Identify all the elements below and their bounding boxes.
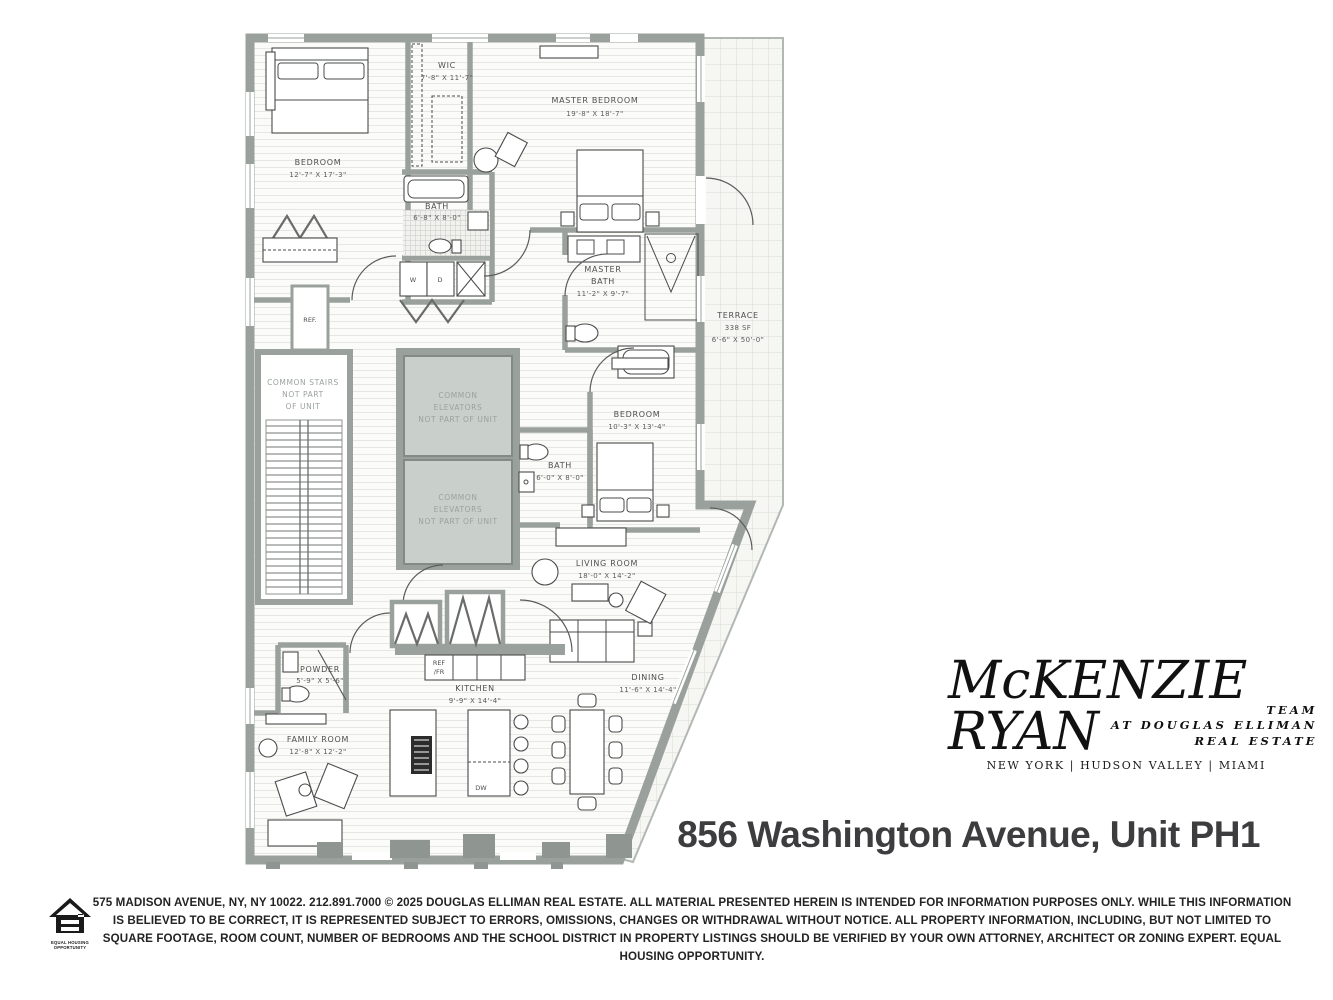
label-ref-fr-1: REF	[433, 659, 446, 667]
label-master-bath-1: MASTER	[584, 265, 621, 274]
logo-name-line1: McKENZIE	[948, 660, 1266, 703]
label-ref-closet: REF.	[303, 316, 316, 324]
equal-housing-icon	[48, 897, 92, 935]
ref-closet: REF.	[292, 286, 328, 350]
label-master-bedroom: MASTER BEDROOM	[551, 96, 638, 105]
label-wic: WIC	[438, 61, 456, 70]
label-common-stairs-3: OF UNIT	[286, 402, 321, 411]
label-bath-middle: BATH	[548, 461, 572, 470]
dims-wic: 7'-8" X 11'-7"	[421, 74, 473, 82]
label-elevator1-2: ELEVATORS	[434, 403, 483, 412]
label-dryer: D	[437, 276, 442, 284]
dims-living-room: 18'-0" X 14'-2"	[578, 572, 635, 580]
logo-team-line3: REAL ESTATE	[1111, 734, 1318, 750]
equal-housing-caption-2: OPPORTUNITY	[47, 945, 93, 950]
label-elevator1-3: NOT PART OF UNIT	[418, 415, 497, 424]
dims-master-bath: 11'-2" X 9'-7"	[577, 290, 629, 298]
area-terrace: 338 SF	[725, 324, 751, 332]
disclaimer-text: 575 MADISON AVENUE, NY, NY 10022. 212.89…	[92, 894, 1292, 966]
dims-terrace: 6'-6" X 50'-0"	[712, 336, 764, 344]
logo-team-line2: AT DOUGLAS ELLIMAN	[1111, 718, 1318, 734]
label-elevator2-1: COMMON	[438, 493, 477, 502]
dims-bedroom-middle: 10'-3" X 13'-4"	[608, 423, 665, 431]
dims-family-room: 12'-8" X 12'-2"	[289, 748, 346, 756]
common-stairs: COMMON STAIRS NOT PART OF UNIT	[258, 352, 350, 602]
washer-dryer: W D	[400, 262, 485, 296]
label-living-room: LIVING ROOM	[576, 559, 638, 568]
logo-team-line1: TEAM	[1111, 703, 1318, 719]
dims-kitchen: 9'-9" X 14'-4"	[449, 697, 501, 705]
label-washer: W	[410, 276, 417, 284]
label-terrace: TERRACE	[716, 311, 759, 320]
dims-powder: 5'-9" X 5'-6"	[296, 677, 344, 685]
page-title: 856 Washington Avenue, Unit PH1	[560, 814, 1260, 856]
label-powder: POWDER	[300, 665, 340, 674]
label-ref-fr-2: /FR	[434, 668, 445, 676]
bed-upper-left	[266, 48, 368, 133]
dims-bath-middle: 6'-0" X 8'-0"	[536, 474, 584, 482]
dims-bedroom-upper: 12'-7" X 17'-3"	[289, 171, 346, 179]
label-master-bath-2: BATH	[591, 277, 615, 286]
label-common-stairs-2: NOT PART	[282, 390, 324, 399]
dims-dining: 11'-6" X 14'-4"	[619, 686, 676, 694]
logo-name-line2: RYAN	[948, 711, 1099, 754]
equal-housing-logo: EQUAL HOUSING OPPORTUNITY	[47, 897, 93, 950]
label-bedroom-middle: BEDROOM	[614, 410, 661, 419]
elevator-shaft: COMMON ELEVATORS NOT PART OF UNIT COMMON…	[396, 348, 520, 570]
label-common-stairs-1: COMMON STAIRS	[267, 378, 339, 387]
page: COMMON STAIRS NOT PART OF UNIT COMMON EL…	[0, 0, 1333, 1000]
logo-locations: NEW YORK | HUDSON VALLEY | MIAMI	[948, 759, 1266, 772]
logo-team-block: TEAM AT DOUGLAS ELLIMAN REAL ESTATE	[1111, 703, 1318, 750]
dims-master-bedroom: 19'-8" X 18'-7"	[566, 110, 623, 118]
label-bath-upper: BATH	[425, 202, 449, 211]
brokerage-logo: McKENZIE RYAN TEAM AT DOUGLAS ELLIMAN RE…	[948, 660, 1266, 772]
label-elevator2-2: ELEVATORS	[434, 505, 483, 514]
label-bedroom-upper: BEDROOM	[295, 158, 342, 167]
label-family-room: FAMILY ROOM	[287, 735, 349, 744]
label-dining: DINING	[631, 673, 664, 682]
label-elevator2-3: NOT PART OF UNIT	[418, 517, 497, 526]
label-dishwasher: DW	[475, 784, 487, 792]
label-kitchen: KITCHEN	[455, 684, 495, 693]
label-elevator1-1: COMMON	[438, 391, 477, 400]
dims-bath-upper: 6'-8" X 8'-0"	[413, 214, 461, 222]
